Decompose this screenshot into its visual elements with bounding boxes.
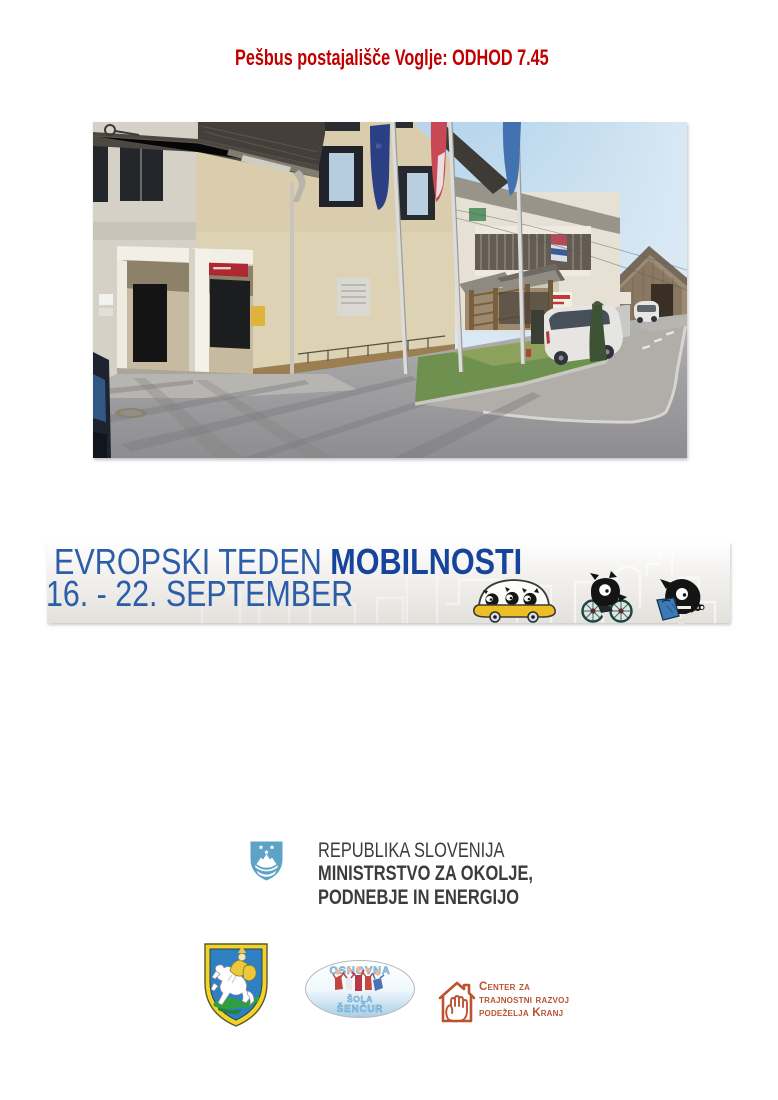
svg-text:ŠOLA: ŠOLA: [347, 993, 373, 1004]
svg-text:ŠENČUR: ŠENČUR: [337, 1002, 384, 1015]
